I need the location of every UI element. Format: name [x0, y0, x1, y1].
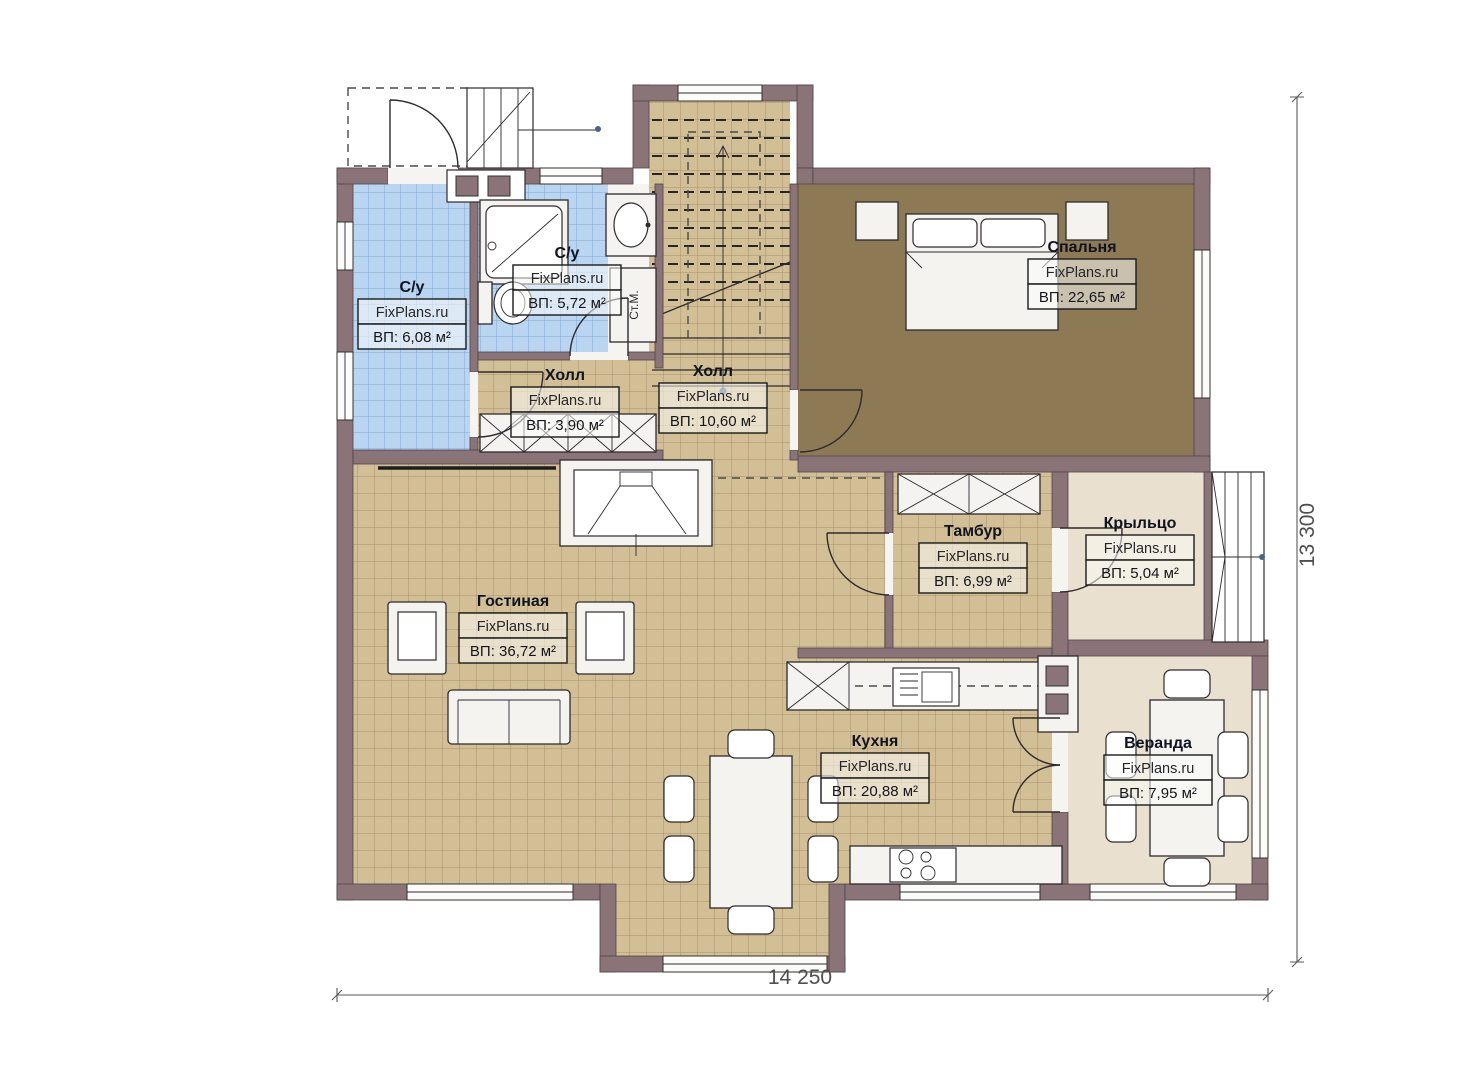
wall-kitchen-top: [798, 648, 1052, 658]
watermark-text: FixPlans.ru: [937, 549, 1010, 565]
chair: [1164, 858, 1210, 886]
window: [337, 222, 353, 270]
chair: [808, 836, 838, 882]
room-area: ВП: 6,99 м²: [934, 573, 1012, 590]
wall-bathroom2-bottom-a: [478, 352, 570, 360]
room-name: С/у: [400, 279, 425, 296]
watermark-text: FixPlans.ru: [376, 305, 449, 321]
chair: [1218, 796, 1248, 842]
kitchen-tall-unit: [1038, 656, 1078, 732]
watermark-text: FixPlans.ru: [529, 393, 602, 409]
fireplace: [560, 460, 712, 556]
room-name: С/у: [555, 245, 580, 262]
chair: [1164, 670, 1210, 698]
wall-porch-right: [1204, 472, 1212, 642]
window: [1252, 690, 1268, 858]
watermark-text: FixPlans.ru: [1104, 541, 1177, 557]
window: [407, 884, 573, 900]
wall-bathroom2-bottom-b: [628, 352, 658, 360]
vent-shafts: [447, 170, 525, 202]
room-name: Крыльцо: [1104, 515, 1177, 532]
room-area: ВП: 10,60 м²: [670, 413, 756, 430]
window: [1194, 250, 1210, 398]
watermark-text: FixPlans.ru: [477, 619, 550, 635]
chair: [664, 836, 694, 882]
dimension-width-text: 14 250: [768, 966, 832, 989]
canopy-outline: [348, 88, 470, 166]
wall-bay-right: [829, 884, 845, 972]
room-name: Холл: [693, 363, 733, 380]
armchair: [576, 602, 634, 674]
washing-machine-label: Ст.М.: [627, 290, 641, 320]
wall-tambour-left-a: [885, 472, 893, 533]
wall-junction: [797, 168, 813, 184]
dimension-line-bottom: [332, 988, 1273, 1002]
armchair: [388, 602, 446, 674]
room-area: ВП: 5,04 м²: [1101, 565, 1179, 582]
floor-plan-drawing: Ст.М.: [0, 0, 1473, 1080]
wall-bedroom-bottom: [798, 456, 1210, 472]
room-area: ВП: 6,08 м²: [373, 329, 451, 346]
bathroom-sink: [606, 194, 656, 256]
floor-plan-page: Ст.М.: [0, 0, 1473, 1080]
watermark-text: FixPlans.ru: [677, 389, 750, 405]
wall-left: [337, 168, 353, 900]
porch-steps: [1212, 472, 1265, 642]
door-opening-bedroom: [790, 390, 798, 450]
window: [337, 352, 353, 420]
wall-bedroom-top: [813, 168, 1210, 184]
window: [540, 168, 602, 184]
door-entrance: [390, 100, 458, 168]
room-area: ВП: 20,88 м²: [832, 783, 918, 800]
window: [900, 884, 1040, 900]
room-name: Веранда: [1124, 735, 1192, 752]
chair: [728, 906, 774, 934]
door-opening-entry: [1052, 528, 1068, 592]
dimension-height-text: 13 300: [1296, 503, 1319, 567]
room-area: ВП: 3,90 м²: [526, 417, 604, 434]
wall-tambour-porch-a: [1052, 472, 1068, 528]
wall-top-a: [337, 168, 388, 184]
chair: [664, 776, 694, 822]
wall-stairbay-right: [797, 85, 813, 168]
wall-tambour-porch-b: [1052, 592, 1068, 656]
wall-tambour-left-b: [885, 595, 893, 656]
wall-bedroom-left-b: [790, 450, 798, 460]
entrance-steps: [467, 88, 601, 168]
watermark-text: FixPlans.ru: [531, 271, 604, 287]
wall-bedroom-left-a: [790, 184, 798, 390]
room-name: Кухня: [852, 733, 899, 750]
chair: [1218, 732, 1248, 778]
room-area: ВП: 7,95 м²: [1119, 785, 1197, 802]
stove: [890, 848, 956, 882]
wall-bathrooms-divider: [470, 184, 478, 372]
sofa: [448, 690, 570, 744]
window: [678, 85, 762, 101]
room-name: Холл: [545, 367, 585, 384]
watermark-text: FixPlans.ru: [1046, 265, 1119, 281]
room-area: ВП: 5,72 м²: [528, 295, 606, 312]
chair: [728, 730, 774, 758]
wall-bathrooms-divider-stub: [470, 437, 478, 450]
room-name: Гостиная: [477, 593, 549, 610]
watermark-text: FixPlans.ru: [839, 759, 912, 775]
window: [1090, 884, 1236, 900]
kitchen-counter-bottom: [850, 846, 1062, 884]
tambour-wardrobe: [898, 474, 1040, 514]
door-opening-tambour: [885, 533, 893, 595]
room-area: ВП: 22,65 м²: [1039, 289, 1125, 306]
room-area: ВП: 36,72 м²: [470, 643, 556, 660]
room-name: Тамбур: [944, 523, 1002, 540]
door-opening-bathroom2: [570, 352, 628, 360]
room-name: Спальня: [1047, 239, 1116, 256]
door-opening-bathroom1: [470, 372, 478, 437]
watermark-text: FixPlans.ru: [1122, 761, 1195, 777]
